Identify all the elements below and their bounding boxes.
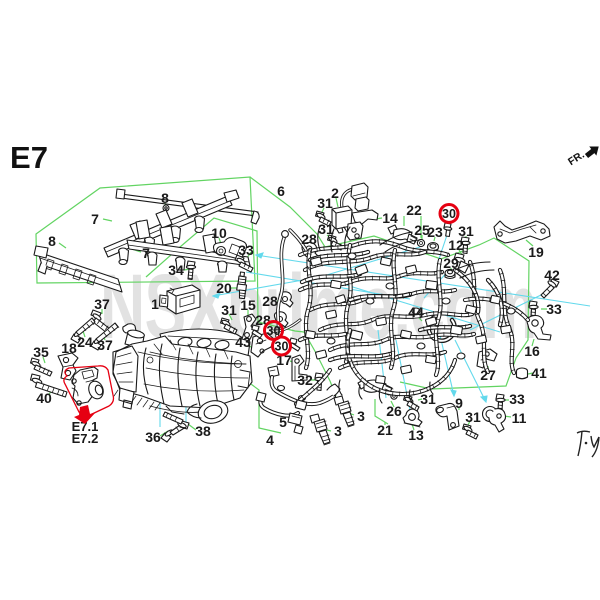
svg-text:34: 34 — [168, 262, 184, 278]
svg-text:26: 26 — [386, 403, 402, 419]
svg-text:10: 10 — [211, 225, 227, 241]
svg-text:32: 32 — [297, 372, 313, 388]
svg-text:14: 14 — [382, 210, 398, 226]
svg-text:13: 13 — [408, 427, 424, 443]
svg-text:33: 33 — [546, 301, 562, 317]
svg-text:1: 1 — [151, 296, 159, 312]
svg-text:27: 27 — [480, 367, 496, 383]
svg-text:30: 30 — [267, 324, 281, 338]
svg-text:31: 31 — [465, 409, 481, 425]
svg-text:7: 7 — [91, 211, 99, 227]
svg-text:42: 42 — [544, 267, 560, 283]
svg-text:19: 19 — [528, 244, 544, 260]
svg-text:35: 35 — [33, 344, 49, 360]
svg-text:20: 20 — [216, 280, 232, 296]
svg-text:3: 3 — [357, 408, 365, 424]
svg-text:38: 38 — [195, 423, 211, 439]
svg-text:41: 41 — [531, 365, 547, 381]
svg-text:24: 24 — [77, 334, 93, 350]
svg-text:28: 28 — [262, 293, 278, 309]
svg-text:9: 9 — [455, 395, 463, 411]
svg-text:8: 8 — [161, 190, 169, 206]
svg-text:33: 33 — [509, 391, 525, 407]
svg-text:6: 6 — [277, 183, 285, 199]
svg-text:37: 37 — [97, 337, 113, 353]
svg-text:7: 7 — [142, 245, 150, 261]
svg-text:40: 40 — [36, 390, 52, 406]
svg-text:22: 22 — [406, 202, 422, 218]
svg-text:43: 43 — [235, 334, 251, 350]
svg-text:31: 31 — [317, 195, 333, 211]
svg-text:15: 15 — [240, 297, 256, 313]
svg-text:18: 18 — [61, 340, 77, 356]
svg-text:29: 29 — [443, 255, 459, 271]
svg-text:44: 44 — [408, 304, 424, 320]
svg-text:31: 31 — [318, 221, 334, 237]
svg-text:4: 4 — [266, 432, 274, 448]
svg-text:8: 8 — [48, 233, 56, 249]
svg-text:30: 30 — [442, 207, 456, 221]
svg-text:28: 28 — [301, 231, 317, 247]
svg-text:16: 16 — [524, 343, 540, 359]
svg-text:21: 21 — [377, 422, 393, 438]
svg-text:11: 11 — [512, 410, 527, 426]
svg-text:5: 5 — [279, 414, 287, 430]
svg-text:31: 31 — [221, 302, 237, 318]
svg-text:12: 12 — [448, 237, 464, 253]
svg-text:23: 23 — [427, 224, 443, 240]
svg-text:31: 31 — [420, 391, 436, 407]
svg-text:E7: E7 — [10, 140, 48, 175]
svg-text:36: 36 — [145, 429, 161, 445]
svg-text:E7.2: E7.2 — [72, 431, 99, 446]
svg-text:3: 3 — [334, 423, 342, 439]
svg-text:37: 37 — [94, 296, 110, 312]
svg-text:33: 33 — [238, 242, 254, 258]
svg-text:30: 30 — [275, 340, 289, 354]
